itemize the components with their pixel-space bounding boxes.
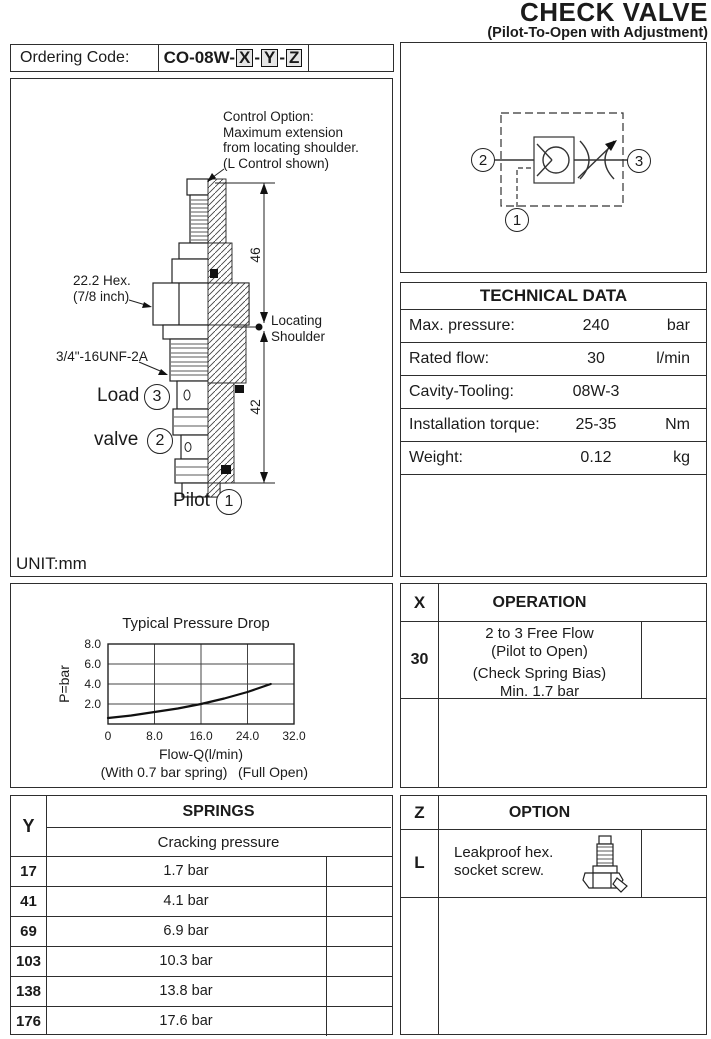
ordering-code-value: CO-08W-X-Y-Z xyxy=(159,45,309,71)
springs-row: 69 6.9 bar xyxy=(11,916,392,947)
ordering-code-box: Ordering Code: CO-08W-X-Y-Z xyxy=(10,44,394,72)
spring-pressure: 13.8 bar xyxy=(46,976,326,1006)
page-subtitle: (Pilot-To-Open with Adjustment) xyxy=(487,25,708,41)
spring-code: 41 xyxy=(11,886,46,916)
technical-data-row: Weight: 0.12 kg xyxy=(401,442,706,475)
td-unit: Nm xyxy=(641,416,706,434)
technical-data-row: Rated flow: 30 l/min xyxy=(401,343,706,376)
ordering-code-y: Y xyxy=(261,49,278,67)
svg-text:16.0: 16.0 xyxy=(189,729,213,743)
schematic-panel: 2 3 1 xyxy=(400,42,707,273)
td-unit: bar xyxy=(641,317,706,335)
hex-size-line-2: (7/8 inch) xyxy=(73,289,131,305)
td-value: 240 xyxy=(551,317,641,335)
ordering-code-x: X xyxy=(236,49,253,67)
operation-line-4: Min. 1.7 bar xyxy=(438,683,641,701)
option-empty-col-divider xyxy=(641,829,642,897)
spring-pressure: 17.6 bar xyxy=(46,1006,326,1036)
control-option-line-1: Control Option: xyxy=(223,109,359,125)
option-row-key: L xyxy=(401,829,438,897)
svg-text:8.0: 8.0 xyxy=(146,729,163,743)
svg-text:P=bar: P=bar xyxy=(56,665,72,703)
datasheet-page: CHECK VALVE (Pilot-To-Open with Adjustme… xyxy=(0,0,711,1039)
option-title: OPTION xyxy=(438,796,641,829)
td-label: Rated flow: xyxy=(401,350,551,368)
pressure-drop-chart-panel: 08.016.024.032.02.04.06.08.0Typical Pres… xyxy=(10,583,393,788)
td-value: 08W-3 xyxy=(551,383,641,401)
springs-subtitle: Cracking pressure xyxy=(46,828,391,856)
technical-data-row: Max. pressure: 240 bar xyxy=(401,310,706,343)
springs-row: 138 13.8 bar xyxy=(11,976,392,1007)
port-pilot-number: 1 xyxy=(216,489,242,515)
springs-row: 41 4.1 bar xyxy=(11,886,392,917)
svg-text:24.0: 24.0 xyxy=(236,729,260,743)
operation-line-1: 2 to 3 Free Flow xyxy=(438,625,641,643)
springs-empty-col-divider xyxy=(326,946,327,976)
port-load-number: 3 xyxy=(144,384,170,410)
svg-text:Flow-Q(l/min): Flow-Q(l/min) xyxy=(159,746,243,762)
option-row-description: Leakproof hex. socket screw. xyxy=(454,844,553,880)
operation-col-key: X xyxy=(401,584,438,621)
spring-pressure: 6.9 bar xyxy=(46,916,326,946)
check-valve-symbol xyxy=(401,43,705,271)
ordering-code-empty-cell xyxy=(309,45,393,71)
svg-text:32.0: 32.0 xyxy=(282,729,306,743)
springs-empty-col-divider xyxy=(326,886,327,916)
schematic-port-1: 1 xyxy=(505,208,529,232)
hex-socket-screw-icon xyxy=(579,834,631,894)
ordering-code-z: Z xyxy=(286,49,302,67)
port-valve-label: valve xyxy=(94,429,138,451)
hex-size-label: 22.2 Hex. (7/8 inch) xyxy=(73,273,131,304)
option-key-divider xyxy=(438,796,439,1034)
dimension-46: 46 xyxy=(247,244,263,266)
technical-data-panel: TECHNICAL DATA Max. pressure: 240 bar Ra… xyxy=(400,282,707,577)
svg-text:0: 0 xyxy=(105,729,112,743)
spring-code: 176 xyxy=(11,1006,46,1036)
locating-shoulder-label: Locating Shoulder xyxy=(271,313,325,344)
schematic-port-3: 3 xyxy=(627,149,651,173)
spring-code: 69 xyxy=(11,916,46,946)
springs-panel: Y SPRINGS Cracking pressure 17 1.7 bar 4… xyxy=(10,795,393,1035)
svg-text:6.0: 6.0 xyxy=(84,657,101,671)
option-panel: Z OPTION L Leakproof hex. socket screw. xyxy=(400,795,707,1035)
unit-note: UNIT:mm xyxy=(16,554,87,574)
locating-shoulder-line-1: Locating xyxy=(271,313,325,329)
control-option-line-2: Maximum extension xyxy=(223,125,359,141)
springs-col-key: Y xyxy=(11,796,46,856)
valve-drawing-panel: Control Option: Maximum extension from l… xyxy=(10,78,393,577)
td-unit: kg xyxy=(641,449,706,467)
page-title: CHECK VALVE xyxy=(520,0,708,28)
option-line-2: socket screw. xyxy=(454,862,553,880)
port-valve-number: 2 xyxy=(147,428,173,454)
svg-text:Typical Pressure Drop: Typical Pressure Drop xyxy=(122,615,270,632)
pressure-drop-chart-svg: 08.016.024.032.02.04.06.08.0Typical Pres… xyxy=(11,584,391,786)
spring-code: 138 xyxy=(11,976,46,1006)
spring-code: 17 xyxy=(11,856,46,886)
spring-pressure: 4.1 bar xyxy=(46,886,326,916)
td-value: 25-35 xyxy=(551,416,641,434)
spring-code: 103 xyxy=(11,946,46,976)
operation-row-key: 30 xyxy=(401,621,438,698)
control-option-note: Control Option: Maximum extension from l… xyxy=(223,109,359,171)
springs-title: SPRINGS xyxy=(46,796,391,828)
code-sep-1: - xyxy=(254,48,260,68)
svg-text:8.0: 8.0 xyxy=(84,637,101,651)
springs-empty-col-divider xyxy=(326,976,327,1006)
operation-panel: X OPERATION 30 2 to 3 Free Flow (Pilot t… xyxy=(400,583,707,788)
svg-text:(Full Open): (Full Open) xyxy=(238,764,308,780)
spring-pressure: 1.7 bar xyxy=(46,856,326,886)
springs-row: 17 1.7 bar xyxy=(11,856,392,887)
operation-empty-col-divider xyxy=(641,621,642,698)
ordering-code-prefix: CO-08W- xyxy=(164,48,235,68)
ordering-code-label: Ordering Code: xyxy=(11,45,159,71)
port-load-label: Load xyxy=(97,385,139,407)
td-label: Installation torque: xyxy=(401,416,551,434)
springs-empty-col-divider xyxy=(326,1006,327,1036)
td-value: 30 xyxy=(551,350,641,368)
operation-line-2: (Pilot to Open) xyxy=(438,643,641,661)
option-header-divider xyxy=(401,829,706,830)
td-unit: l/min xyxy=(641,350,706,368)
svg-text:4.0: 4.0 xyxy=(84,677,101,691)
operation-header-divider xyxy=(401,621,706,622)
springs-row: 176 17.6 bar xyxy=(11,1006,392,1036)
technical-data-row: Cavity-Tooling: 08W-3 xyxy=(401,376,706,409)
springs-empty-col-divider xyxy=(326,856,327,886)
hex-size-line-1: 22.2 Hex. xyxy=(73,273,131,289)
port-pilot-label: Pilot xyxy=(173,490,210,512)
spring-pressure: 10.3 bar xyxy=(46,946,326,976)
td-label: Max. pressure: xyxy=(401,317,551,335)
thread-spec-label: 3/4"-16UNF-2A xyxy=(56,349,148,365)
technical-data-title: TECHNICAL DATA xyxy=(401,283,706,310)
dimension-42: 42 xyxy=(247,396,263,418)
td-label: Cavity-Tooling: xyxy=(401,383,551,401)
code-sep-2: - xyxy=(279,48,285,68)
td-value: 0.12 xyxy=(551,449,641,467)
operation-row-description: 2 to 3 Free Flow (Pilot to Open) (Check … xyxy=(438,625,641,701)
td-label: Weight: xyxy=(401,449,551,467)
control-option-line-3: from locating shoulder. xyxy=(223,140,359,156)
schematic-port-2: 2 xyxy=(471,148,495,172)
technical-data-row: Installation torque: 25-35 Nm xyxy=(401,409,706,442)
option-row-divider xyxy=(401,897,706,898)
operation-title: OPERATION xyxy=(438,584,641,621)
operation-line-3: (Check Spring Bias) xyxy=(438,665,641,683)
locating-shoulder-line-2: Shoulder xyxy=(271,329,325,345)
svg-text:2.0: 2.0 xyxy=(84,697,101,711)
option-line-1: Leakproof hex. xyxy=(454,844,553,862)
springs-row: 103 10.3 bar xyxy=(11,946,392,977)
springs-empty-col-divider xyxy=(326,916,327,946)
option-col-key: Z xyxy=(401,796,438,829)
control-option-line-4: (L Control shown) xyxy=(223,156,359,172)
svg-text:(With 0.7 bar spring): (With 0.7 bar spring) xyxy=(101,764,228,780)
